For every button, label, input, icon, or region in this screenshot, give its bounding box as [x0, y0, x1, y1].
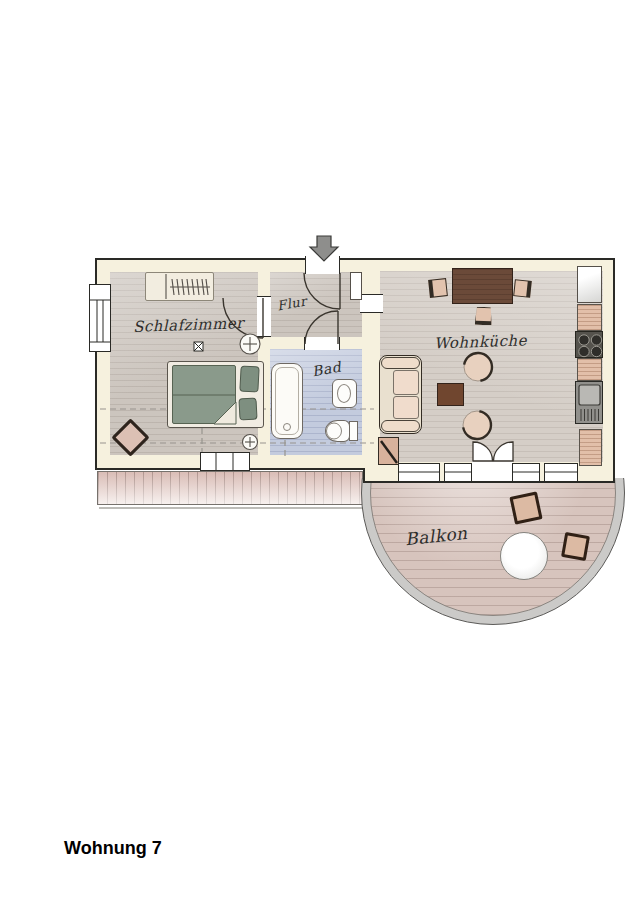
kitchen-counter-3: [579, 429, 602, 466]
washbasin: [332, 379, 357, 408]
balcony-door-opening: [472, 461, 513, 481]
toilet-bowl: [325, 420, 350, 442]
page-title: Wohnung 7: [64, 838, 162, 859]
living-south-window-1: [398, 463, 440, 482]
room-label-wohnkueche: Wohnküche: [434, 331, 528, 352]
bathtub: [271, 363, 303, 439]
wardrobe: [145, 272, 214, 301]
balcony-chair-1: [509, 491, 542, 524]
floorplan-page: Balkon: [0, 0, 640, 906]
bedroom-doorway: [257, 296, 271, 337]
kitchen-counter-2: [577, 358, 602, 381]
living-south-window-2: [444, 463, 472, 482]
balcony-round-table: [500, 532, 548, 580]
living-south-window-4: [544, 463, 578, 482]
bed-pillow-2: [238, 398, 257, 421]
balcony-area: Balkon: [350, 478, 636, 630]
kitchen-stove: [575, 331, 603, 358]
entrance-doorway: [305, 256, 340, 274]
toilet-tank: [349, 421, 358, 441]
bed-duvet: [172, 365, 236, 424]
dining-chair-bottom: [475, 307, 493, 326]
bed-pillow-1: [239, 366, 259, 393]
bedroom-south-window: [200, 452, 250, 471]
bath-doorway: [304, 337, 340, 350]
balcony-chair-2: [561, 532, 590, 561]
dining-table: [452, 268, 513, 304]
kitchen-counter-1: [577, 304, 602, 331]
sofa-cushion-1: [393, 370, 419, 395]
washbasin-bowl: [337, 384, 351, 403]
dining-chair-right: [513, 279, 532, 298]
terrace-deck: [97, 471, 363, 505]
terrace-edge-line: [99, 507, 363, 509]
room-label-schlafzimmer: Schlafzimmer: [133, 314, 244, 336]
living-doorway: [360, 294, 383, 313]
kitchen-sink-unit: [575, 381, 603, 424]
bathtub-inner: [275, 367, 299, 435]
sofa-armrest-bottom: [381, 420, 420, 432]
sofa-armrest-top: [381, 357, 420, 369]
dining-chair-left: [428, 278, 448, 298]
side-table: [437, 383, 464, 406]
sofa-cushion-2: [393, 396, 419, 419]
duct-shaft: [350, 272, 362, 300]
kitchen-fridge: [577, 266, 602, 303]
bedroom-west-window: [89, 284, 111, 352]
living-south-window-3: [512, 463, 540, 482]
corner-shelf: [378, 437, 399, 465]
